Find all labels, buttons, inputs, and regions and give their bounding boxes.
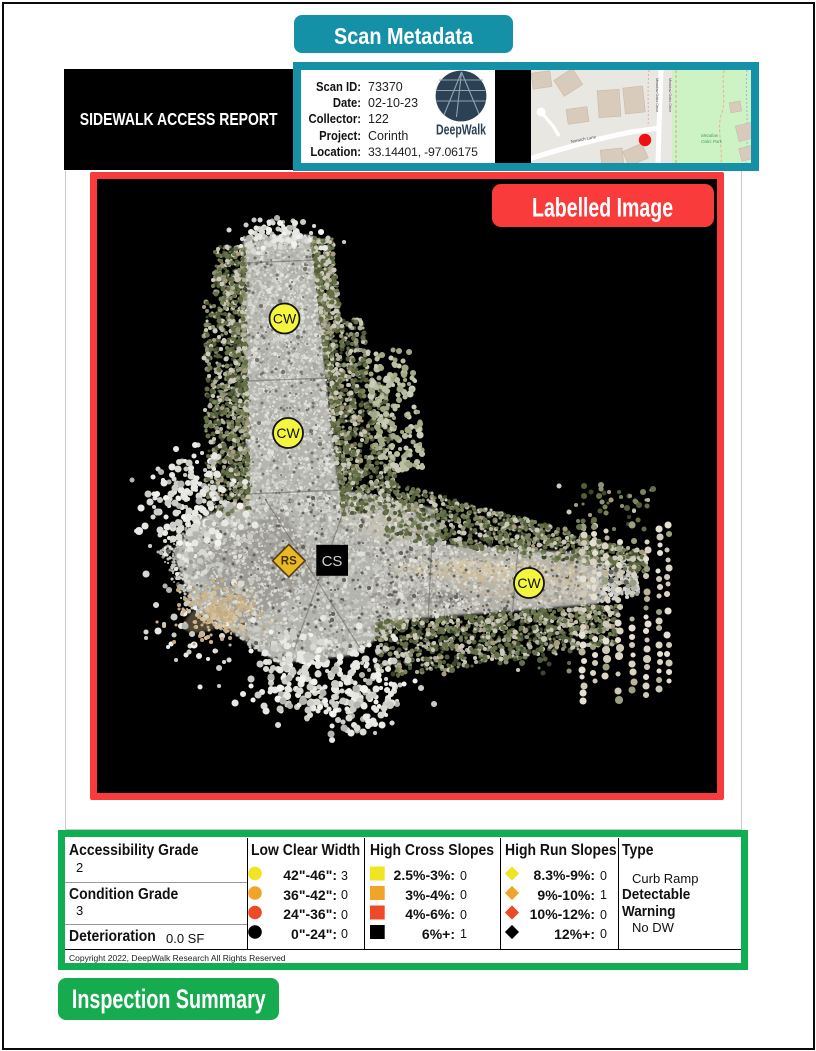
svg-text:DeepWalk: DeepWalk xyxy=(436,123,487,139)
svg-text:CW: CW xyxy=(517,575,541,591)
svg-text:Meadow Oaks Drive: Meadow Oaks Drive xyxy=(668,78,672,112)
svg-text:CW: CW xyxy=(273,311,297,327)
svg-text:RS: RS xyxy=(281,556,297,568)
svg-text:Meadow Oaks Drive: Meadow Oaks Drive xyxy=(655,78,659,112)
svg-text:CS: CS xyxy=(322,553,343,570)
svg-text:Meadow: Meadow xyxy=(701,133,719,138)
svg-text:CW: CW xyxy=(276,425,300,441)
svg-text:Oaks Park: Oaks Park xyxy=(701,139,723,144)
